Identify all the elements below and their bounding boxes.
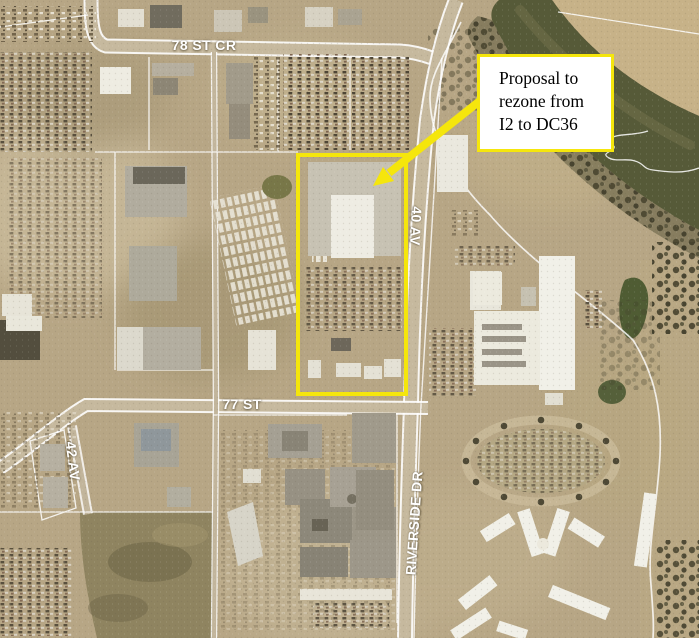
callout-line: I2 to DC36 (499, 113, 607, 136)
rezone-highlight-rect (296, 153, 408, 396)
rezone-callout: Proposal to rezone from I2 to DC36 (477, 54, 614, 152)
street-label-77-st: 77 ST (222, 396, 261, 412)
callout-line: rezone from (499, 90, 607, 113)
street-label-40-av: 40 AV (407, 206, 425, 246)
street-label-78-st-cr: 78 ST CR (172, 37, 237, 53)
rezoning-map: 78 ST CR 77 ST 40 AV 42 AV RIVERSIDE DR … (0, 0, 699, 638)
callout-line: Proposal to (499, 67, 607, 90)
